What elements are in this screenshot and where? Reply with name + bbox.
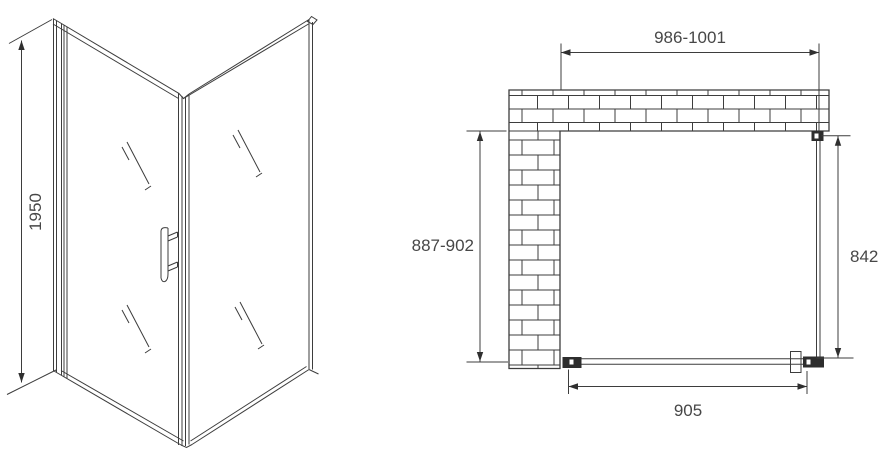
rail-line xyxy=(53,19,179,94)
arrow-down-icon xyxy=(835,348,841,358)
top-rail-right xyxy=(184,20,310,99)
rail-line xyxy=(191,367,307,442)
arrow-up-icon xyxy=(477,132,483,142)
glass-shine-icon xyxy=(235,302,264,349)
rail-line xyxy=(192,370,309,445)
post-bottom-cap xyxy=(181,445,192,448)
corner-post xyxy=(179,93,193,448)
drawing-canvas: 1950 xyxy=(0,0,883,461)
fitting-slot xyxy=(815,134,819,139)
height-dimension: 1950 xyxy=(7,20,56,395)
door-handle-3d xyxy=(161,228,178,282)
right-post xyxy=(308,17,318,370)
perspective-view: 1950 xyxy=(7,17,319,448)
rail-line xyxy=(189,20,309,95)
door-width-label: 905 xyxy=(674,401,702,420)
arrow-down-icon xyxy=(18,373,24,383)
rail-line xyxy=(184,24,309,99)
side-panel-label: 842 xyxy=(850,247,878,266)
technical-drawing: 1950 xyxy=(0,0,883,461)
fitting-slot xyxy=(807,360,811,365)
top-rail-left xyxy=(53,19,179,99)
handle-top-cap xyxy=(161,228,168,231)
arrow-right-icon xyxy=(810,49,820,55)
height-dimension-label: 1950 xyxy=(26,193,45,231)
glass-reflection-marks xyxy=(122,130,264,353)
door-width-dimension: 905 xyxy=(569,370,808,421)
extension-line xyxy=(9,20,52,44)
side-panel-dimension: 842 xyxy=(817,136,879,358)
rail-foot xyxy=(309,370,319,375)
opening-depth-label: 887-902 xyxy=(412,236,474,255)
fitting-slot xyxy=(570,360,574,365)
side-glass-panel xyxy=(812,131,824,357)
glass-shine-icon xyxy=(122,142,151,190)
rail-line xyxy=(53,24,179,99)
opening-width-dimension: 986-1001 xyxy=(561,28,819,131)
arrow-right-icon xyxy=(798,383,808,389)
extension-line xyxy=(7,370,56,395)
rail-line xyxy=(54,371,181,445)
glass-shine-icon xyxy=(233,130,262,177)
handle-bottom-stub xyxy=(168,262,178,271)
arrow-up-icon xyxy=(835,136,841,146)
wall-bricks xyxy=(509,90,829,369)
wall-outline xyxy=(509,90,829,369)
left-wall-profile xyxy=(54,19,68,379)
arrow-left-icon xyxy=(569,383,579,389)
bottom-rail-right xyxy=(191,367,319,445)
bottom-rail-left xyxy=(54,371,184,446)
arrow-left-icon xyxy=(561,49,571,55)
opening-depth-dimension: 887-902 xyxy=(412,131,508,362)
rail-line xyxy=(61,371,184,442)
door-handle-plan xyxy=(791,352,802,373)
arrow-down-icon xyxy=(477,352,483,362)
handle-top-stub xyxy=(168,232,178,241)
door-plan xyxy=(563,352,825,373)
plan-view: 986-1001 887-902 842 905 xyxy=(412,28,879,420)
opening-width-label: 986-1001 xyxy=(654,28,726,47)
handle-bottom-cap xyxy=(161,274,168,282)
glass-shine-icon xyxy=(122,305,151,353)
arrow-up-icon xyxy=(18,41,24,51)
